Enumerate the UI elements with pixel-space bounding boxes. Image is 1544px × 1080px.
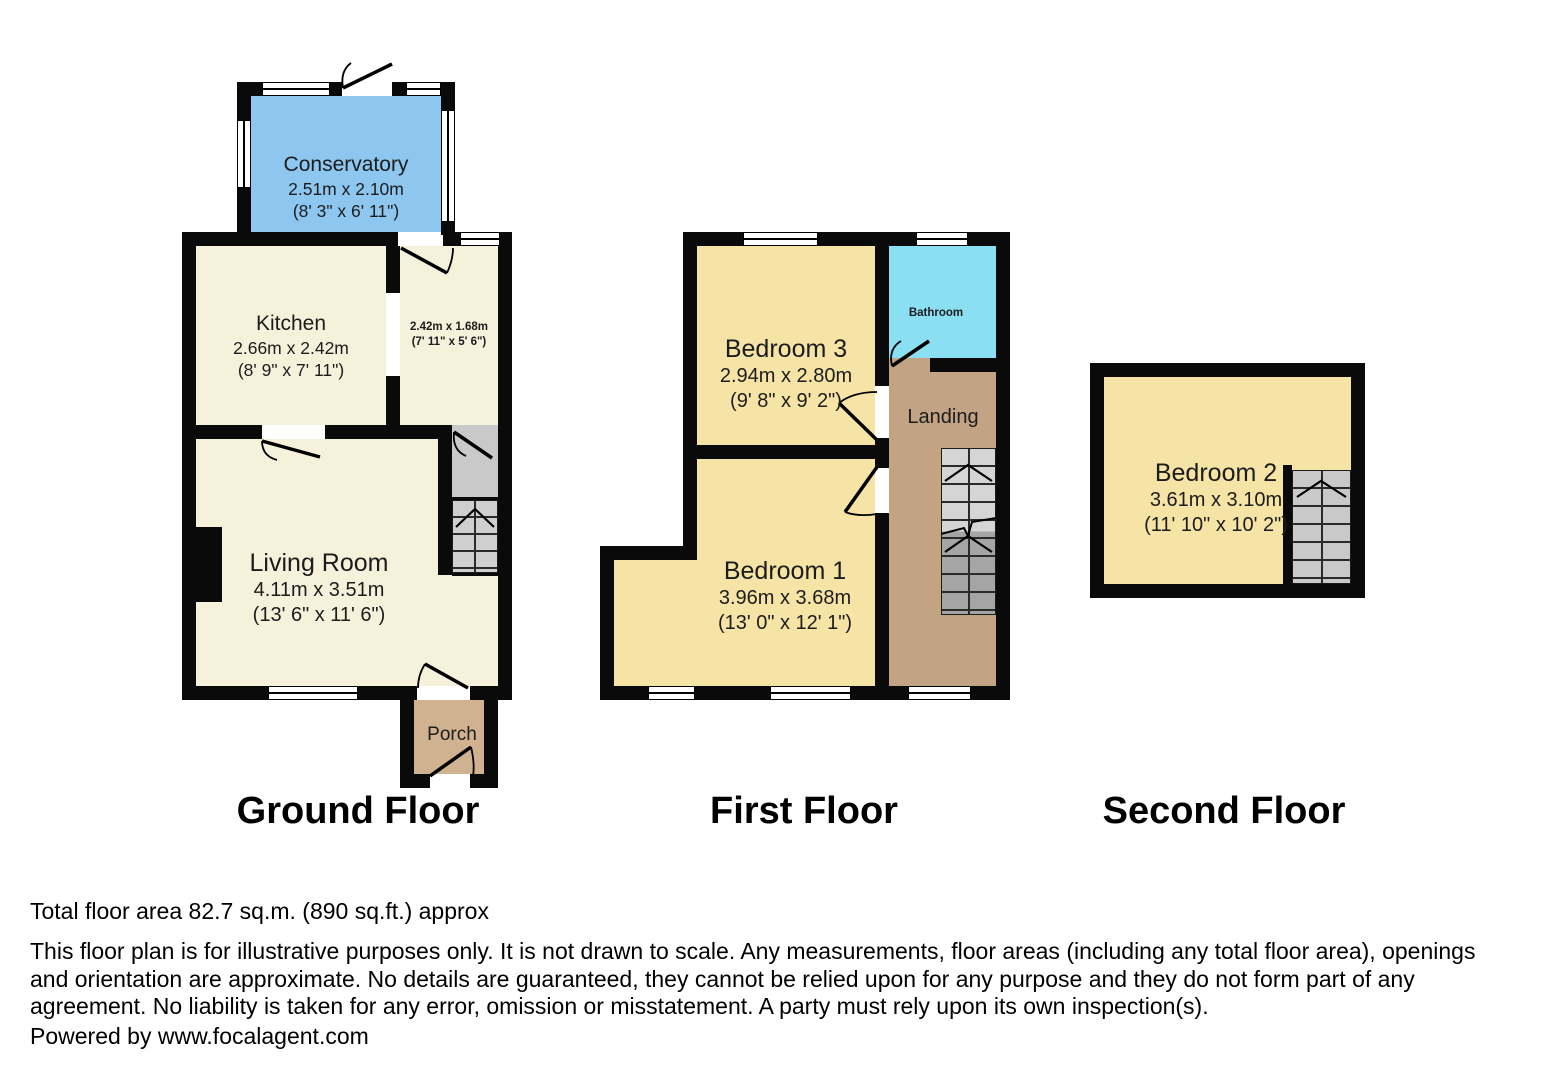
room-dims-metric: 3.61m x 3.10m: [1144, 488, 1288, 513]
room-label-living-room: Living Room 4.11m x 3.51m (13' 6" x 11' …: [250, 548, 389, 628]
stairs-second: [1292, 470, 1351, 584]
window: [441, 110, 455, 222]
wall: [1090, 584, 1365, 598]
wall: [875, 438, 889, 468]
wall: [1090, 363, 1104, 598]
room-dims-imperial: (9' 8" x 9' 2"): [720, 389, 852, 414]
room-label-kitchen: Kitchen 2.66m x 2.42m (8' 9" x 7' 11"): [233, 311, 349, 381]
room-name: Bedroom 1: [718, 556, 852, 586]
door-leaf: [343, 64, 392, 88]
room-label-bathroom: Bathroom: [909, 306, 963, 320]
window: [406, 82, 441, 96]
stairs-first: [941, 448, 996, 615]
wall: [400, 774, 430, 788]
disclaimer-text: This floor plan is for illustrative purp…: [30, 938, 1485, 1021]
room-label-bedroom1: Bedroom 1 3.96m x 3.68m (13' 0" x 12' 1"…: [718, 556, 852, 636]
wall: [386, 376, 400, 439]
stairs-ground: [452, 500, 498, 573]
window: [648, 686, 695, 700]
wall: [484, 686, 498, 788]
wall: [182, 232, 398, 246]
wall: [386, 246, 400, 293]
room-name: Kitchen: [233, 311, 349, 337]
caption-ground-floor: Ground Floor: [237, 790, 480, 833]
floorplan-canvas: Conservatory 2.51m x 2.10m (8' 3" x 6' 1…: [0, 0, 1544, 1080]
door-arc: [342, 63, 351, 88]
room-name: Landing: [907, 406, 978, 429]
room-name: Porch: [427, 724, 477, 746]
window: [916, 232, 968, 246]
wall: [683, 232, 697, 560]
window: [460, 232, 500, 246]
room-dims-metric: 2.51m x 2.10m: [284, 178, 409, 200]
room-label-landing: Landing: [907, 406, 978, 429]
room-dims-imperial: (13' 0" x 12' 1"): [718, 611, 852, 636]
room-bathroom: [889, 246, 996, 358]
wall: [498, 232, 512, 700]
powered-by-text: Powered by www.focalagent.com: [30, 1023, 369, 1050]
room-dims-metric: 2.42m x 1.68m: [410, 320, 488, 335]
room-dims-imperial: (11' 10" x 10' 2"): [1144, 513, 1288, 538]
room-dims-metric: 4.11m x 3.51m: [250, 578, 389, 603]
room-dims-imperial: (7' 11" x 5' 6"): [410, 335, 488, 350]
window: [908, 686, 971, 700]
stair-edge: [452, 573, 498, 576]
window: [262, 82, 330, 96]
room-dims-imperial: (8' 3" x 6' 11"): [284, 200, 409, 222]
room-name: Living Room: [250, 548, 389, 578]
room-dims-imperial: (13' 6" x 11' 6"): [250, 603, 389, 628]
room-dims-metric: 3.96m x 3.68m: [718, 586, 852, 611]
wall: [875, 513, 889, 700]
window: [237, 120, 251, 188]
room-name: Conservatory: [284, 152, 409, 178]
wall: [875, 246, 889, 386]
hallway-ground: [452, 425, 498, 497]
stair-edge: [452, 497, 498, 500]
room-label-bedroom2: Bedroom 2 3.61m x 3.10m (11' 10" x 10' 2…: [1144, 458, 1288, 538]
wall: [1090, 363, 1365, 377]
room-dims-metric: 2.66m x 2.42m: [233, 337, 349, 359]
room-name: Bedroom 3: [720, 334, 852, 364]
room-label-porch: Porch: [427, 724, 477, 746]
room-label-conservatory: Conservatory 2.51m x 2.10m (8' 3" x 6' 1…: [284, 152, 409, 222]
wall: [400, 686, 414, 788]
window: [268, 686, 358, 700]
room-name: Bathroom: [909, 306, 963, 320]
total-floor-area: Total floor area 82.7 sq.m. (890 sq.ft.)…: [30, 898, 489, 925]
wall: [930, 358, 996, 372]
wall: [470, 774, 498, 788]
wall: [600, 546, 614, 700]
wall: [196, 425, 262, 439]
chimney-breast: [196, 527, 222, 602]
window: [743, 232, 818, 246]
caption-second-floor: Second Floor: [1103, 790, 1346, 833]
wall: [996, 232, 1010, 700]
wall: [182, 232, 196, 700]
room-living-right: [438, 575, 498, 686]
room-dims-metric: 2.94m x 2.80m: [720, 364, 852, 389]
room-name: Bedroom 2: [1144, 458, 1288, 488]
wall: [1351, 363, 1365, 598]
room-dims-imperial: (8' 9" x 7' 11"): [233, 359, 349, 381]
caption-first-floor: First Floor: [710, 790, 898, 833]
wall: [600, 546, 697, 560]
room-bedroom1-ext: [614, 560, 697, 686]
wall: [683, 445, 875, 459]
room-label-bedroom3: Bedroom 3 2.94m x 2.80m (9' 8" x 9' 2"): [720, 334, 852, 414]
window: [770, 686, 851, 700]
wall: [438, 425, 452, 575]
room-label-store: 2.42m x 1.68m (7' 11" x 5' 6"): [410, 320, 488, 350]
